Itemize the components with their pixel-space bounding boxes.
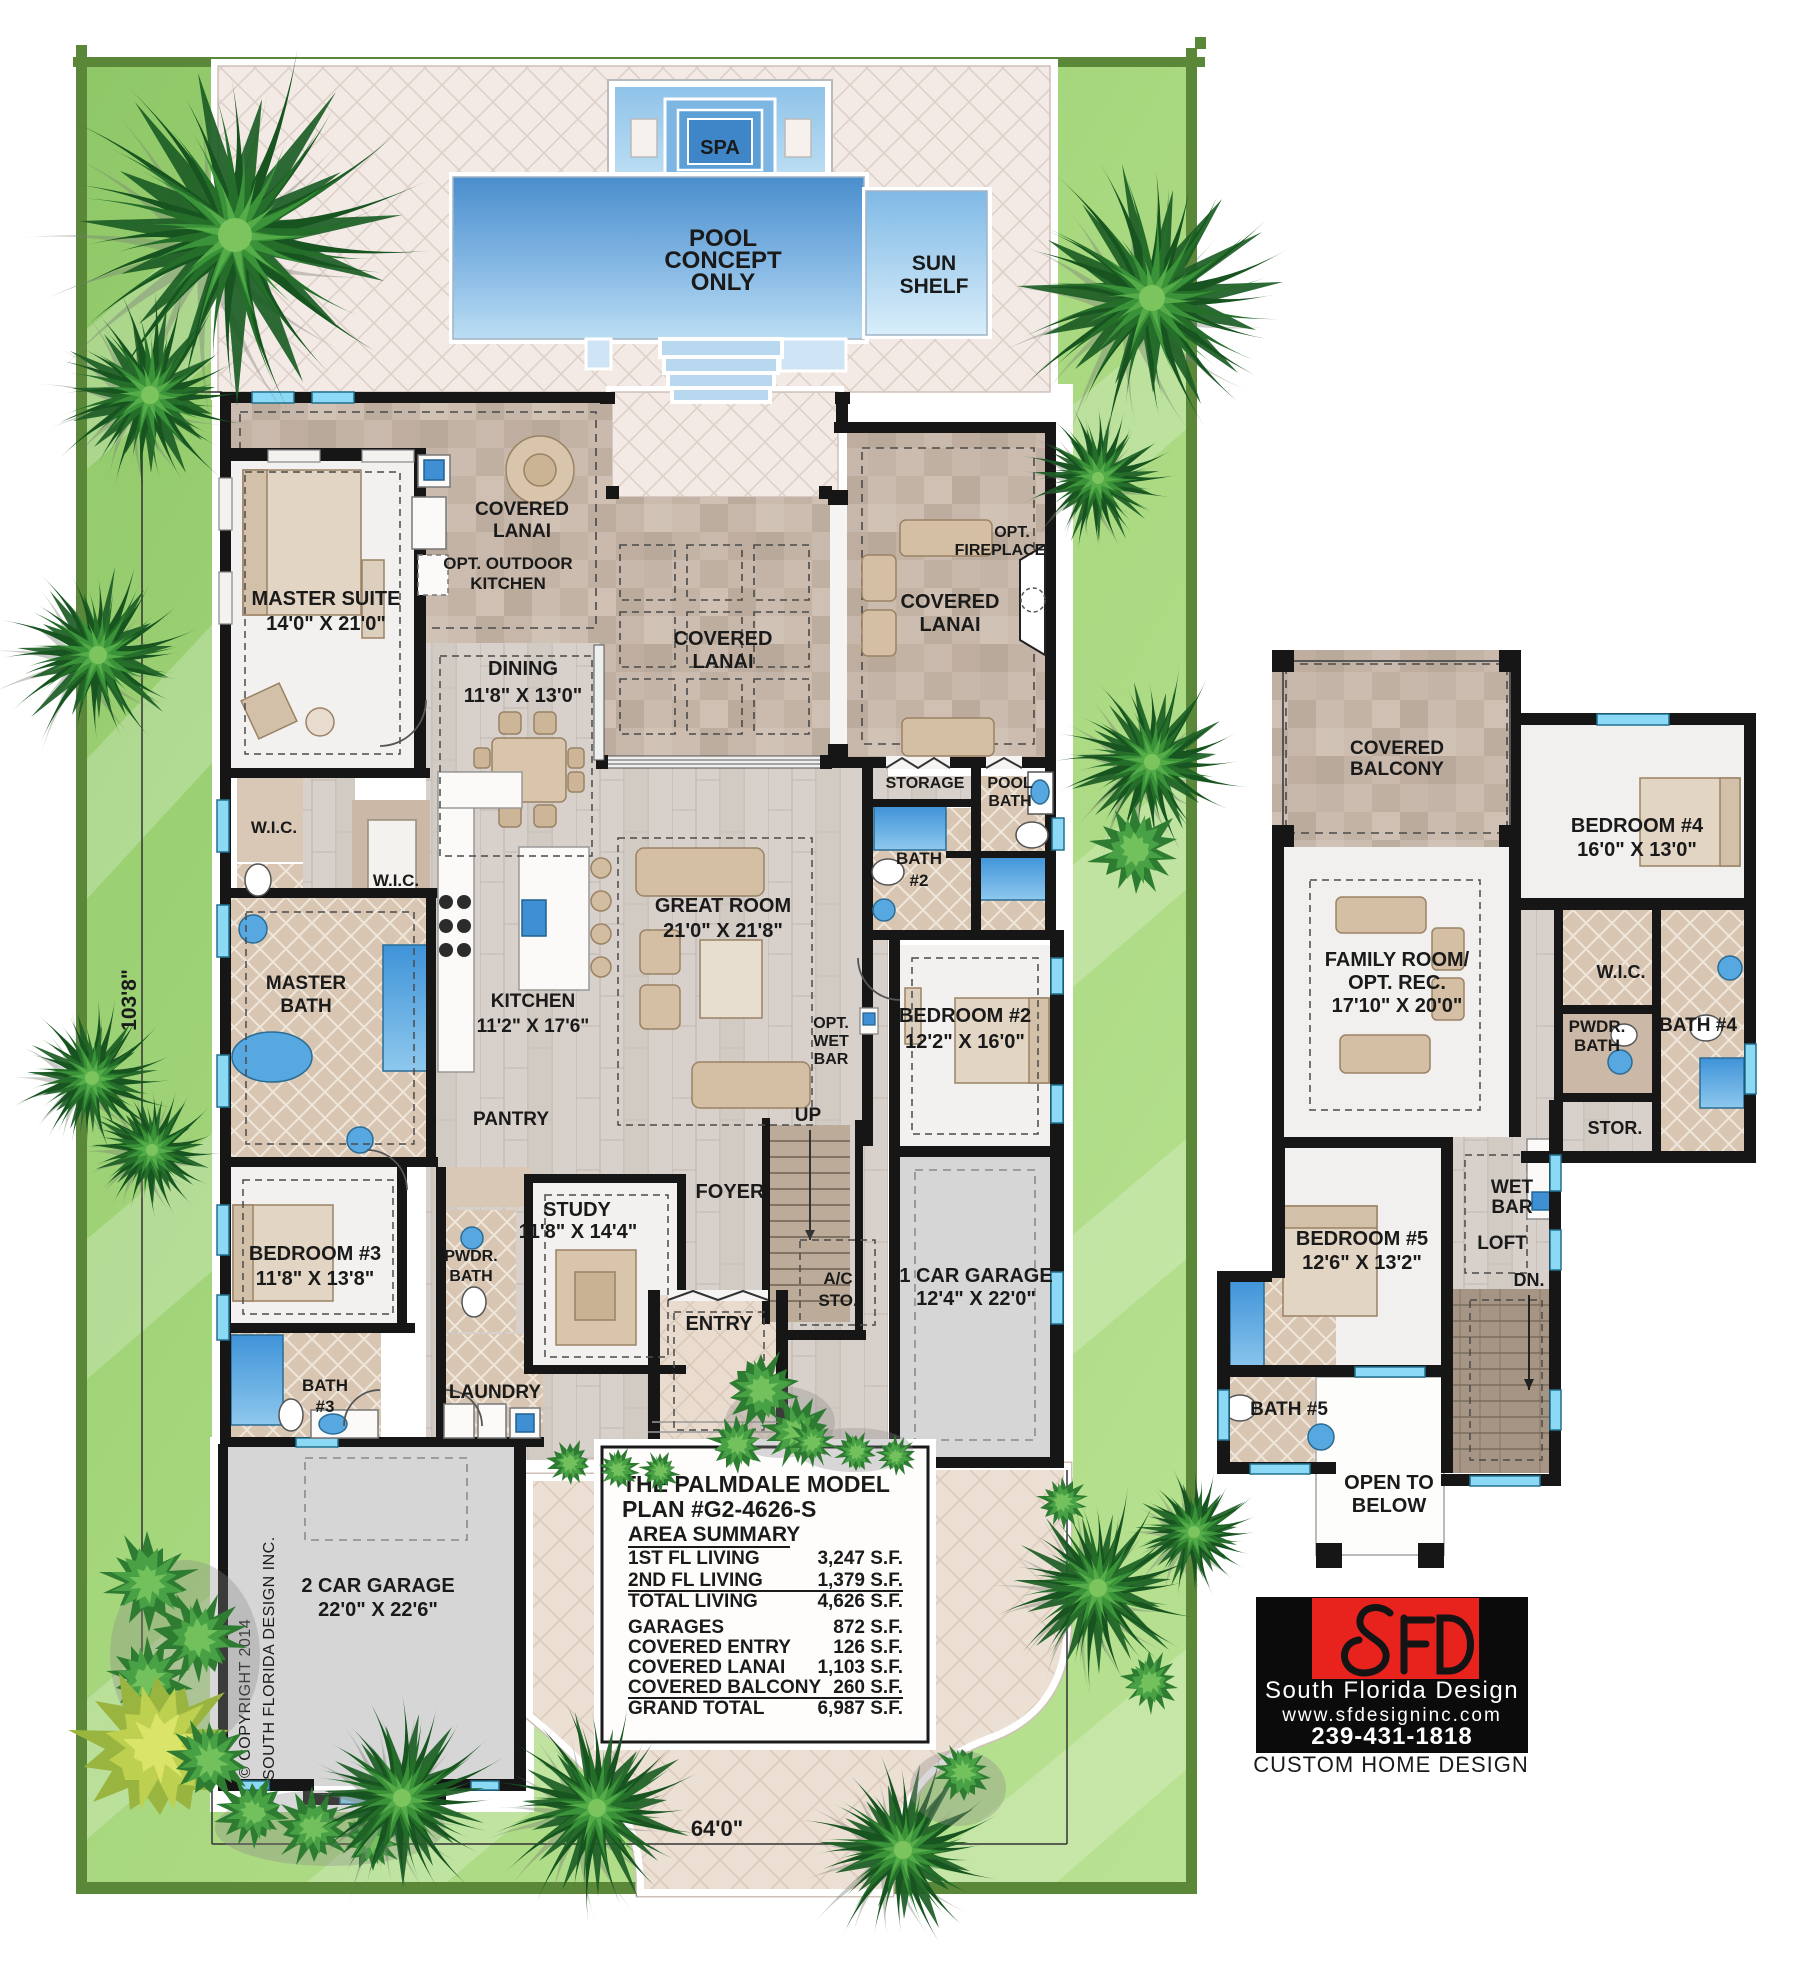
svg-text:OPT. OUTDOOR: OPT. OUTDOOR — [443, 554, 572, 573]
svg-text:BATH: BATH — [449, 1268, 492, 1285]
svg-text:ONLY: ONLY — [691, 269, 755, 296]
svg-text:64'0": 64'0" — [691, 1816, 743, 1841]
svg-text:STORAGE: STORAGE — [886, 775, 965, 792]
svg-text:SPA: SPA — [700, 137, 740, 159]
svg-text:OPEN TO: OPEN TO — [1344, 1472, 1434, 1494]
svg-text:MASTER SUITE: MASTER SUITE — [252, 588, 401, 610]
svg-text:LANAI: LANAI — [919, 614, 980, 636]
svg-text:BELOW: BELOW — [1352, 1495, 1427, 1517]
svg-text:LAUNDRY: LAUNDRY — [449, 1382, 542, 1403]
svg-text:239-431-1818: 239-431-1818 — [1311, 1723, 1472, 1750]
svg-text:OPT. REC.: OPT. REC. — [1348, 972, 1446, 994]
svg-text:BAR: BAR — [1491, 1197, 1532, 1218]
svg-text:BATH: BATH — [1574, 1036, 1620, 1055]
svg-text:SOUTH FLORIDA DESIGN INC.: SOUTH FLORIDA DESIGN INC. — [261, 1536, 278, 1780]
svg-text:PWDR.: PWDR. — [444, 1248, 497, 1265]
svg-text:BALCONY: BALCONY — [1350, 759, 1444, 780]
svg-text:12'4" X 22'0": 12'4" X 22'0" — [916, 1288, 1036, 1310]
svg-text:WET: WET — [813, 1033, 849, 1050]
svg-text:FOYER: FOYER — [696, 1181, 765, 1203]
svg-text:BATH #5: BATH #5 — [1250, 1399, 1328, 1420]
svg-text:PANTRY: PANTRY — [473, 1109, 549, 1130]
svg-text:FIREPLACE: FIREPLACE — [955, 542, 1046, 559]
svg-text:PWDR.: PWDR. — [1569, 1017, 1626, 1036]
svg-text:BAR: BAR — [814, 1051, 849, 1068]
svg-text:11'2" X 17'6": 11'2" X 17'6" — [477, 1016, 590, 1037]
svg-text:BATH: BATH — [302, 1376, 348, 1395]
svg-text:4,626 S.F.: 4,626 S.F. — [817, 1591, 903, 1612]
svg-text:#3: #3 — [316, 1397, 335, 1416]
svg-text:LOFT: LOFT — [1477, 1233, 1527, 1254]
svg-text:W.I.C.: W.I.C. — [373, 871, 419, 890]
svg-text:GRAND TOTAL: GRAND TOTAL — [628, 1698, 765, 1719]
svg-text:2 CAR GARAGE: 2 CAR GARAGE — [301, 1575, 454, 1597]
svg-text:1 CAR GARAGE: 1 CAR GARAGE — [899, 1265, 1052, 1287]
svg-text:103'8": 103'8" — [118, 969, 141, 1031]
svg-text:South Florida Design: South Florida Design — [1265, 1677, 1519, 1704]
svg-text:11'8" X 13'8": 11'8" X 13'8" — [256, 1268, 375, 1290]
svg-text:1,379 S.F.: 1,379 S.F. — [817, 1570, 903, 1591]
svg-text:SHELF: SHELF — [900, 275, 969, 298]
svg-text:WET: WET — [1491, 1177, 1534, 1198]
svg-text:TOTAL LIVING: TOTAL LIVING — [628, 1591, 758, 1612]
svg-text:22'0" X 22'6": 22'0" X 22'6" — [318, 1599, 438, 1621]
svg-text:3,247 S.F.: 3,247 S.F. — [817, 1548, 903, 1569]
svg-text:COVERED ENTRY: COVERED ENTRY — [628, 1637, 791, 1658]
svg-text:126 S.F.: 126 S.F. — [833, 1637, 903, 1658]
svg-text:11'8" X 14'4": 11'8" X 14'4" — [519, 1221, 638, 1243]
svg-text:1,103 S.F.: 1,103 S.F. — [817, 1657, 903, 1678]
svg-text:PLAN #G2-4626-S: PLAN #G2-4626-S — [622, 1496, 816, 1522]
svg-text:BATH: BATH — [988, 793, 1031, 810]
svg-text:A/C: A/C — [823, 1269, 852, 1288]
svg-text:BEDROOM #4: BEDROOM #4 — [1571, 815, 1704, 837]
svg-text:BEDROOM #5: BEDROOM #5 — [1296, 1228, 1428, 1250]
svg-text:UP: UP — [795, 1105, 822, 1126]
svg-text:DINING: DINING — [488, 658, 558, 680]
svg-text:16'0" X 13'0": 16'0" X 13'0" — [1577, 839, 1697, 861]
svg-text:#2: #2 — [910, 871, 929, 890]
svg-text:17'10" X 20'0": 17'10" X 20'0" — [1332, 995, 1463, 1017]
svg-text:GARAGES: GARAGES — [628, 1617, 724, 1638]
svg-text:ENTRY: ENTRY — [685, 1313, 753, 1335]
svg-text:FAMILY ROOM/: FAMILY ROOM/ — [1325, 949, 1470, 971]
svg-text:COVERED LANAI: COVERED LANAI — [628, 1657, 785, 1678]
svg-text:KITCHEN: KITCHEN — [491, 991, 575, 1012]
svg-text:COVERED: COVERED — [674, 628, 773, 650]
svg-text:LANAI: LANAI — [692, 651, 753, 673]
svg-text:BATH #4: BATH #4 — [1659, 1015, 1737, 1036]
svg-text:STOR.: STOR. — [1588, 1118, 1643, 1138]
svg-text:12'6" X 13'2": 12'6" X 13'2" — [1302, 1252, 1422, 1274]
svg-text:MASTER: MASTER — [266, 973, 347, 994]
svg-text:COVERED: COVERED — [1350, 738, 1444, 759]
svg-text:LANAI: LANAI — [493, 521, 551, 542]
svg-text:W.I.C.: W.I.C. — [1597, 962, 1646, 982]
svg-text:COVERED: COVERED — [901, 591, 1000, 613]
svg-text:12'2" X 16'0": 12'2" X 16'0" — [905, 1031, 1025, 1053]
svg-text:BEDROOM #2: BEDROOM #2 — [899, 1005, 1031, 1027]
svg-text:AREA SUMMARY: AREA SUMMARY — [628, 1523, 800, 1546]
svg-text:260 S.F.: 260 S.F. — [833, 1677, 903, 1698]
svg-text:OPT.: OPT. — [994, 524, 1030, 541]
svg-text:STUDY: STUDY — [543, 1199, 611, 1221]
svg-text:OPT.: OPT. — [813, 1015, 849, 1032]
svg-text:2ND FL LIVING: 2ND FL LIVING — [628, 1570, 763, 1591]
svg-text:BEDROOM #3: BEDROOM #3 — [249, 1243, 381, 1265]
svg-text:GREAT ROOM: GREAT ROOM — [655, 895, 791, 917]
svg-text:COVERED: COVERED — [475, 499, 569, 520]
svg-text:CUSTOM HOME DESIGN: CUSTOM HOME DESIGN — [1253, 1752, 1529, 1777]
svg-text:DN.: DN. — [1514, 1270, 1545, 1290]
svg-text:14'0" X 21'0": 14'0" X 21'0" — [266, 613, 386, 635]
svg-text:POOL: POOL — [987, 775, 1033, 792]
svg-text:W.I.C.: W.I.C. — [251, 818, 297, 837]
svg-text:STO.: STO. — [818, 1291, 857, 1310]
svg-text:11'8" X 13'0": 11'8" X 13'0" — [464, 685, 583, 707]
svg-text:KITCHEN: KITCHEN — [470, 574, 546, 593]
svg-text:872 S.F.: 872 S.F. — [833, 1617, 903, 1638]
svg-text:BATH: BATH — [280, 996, 331, 1017]
svg-text:BATH: BATH — [896, 849, 942, 868]
svg-text:SUN: SUN — [912, 252, 956, 275]
svg-text:1ST FL LIVING: 1ST FL LIVING — [628, 1548, 760, 1569]
svg-text:21'0" X 21'8": 21'0" X 21'8" — [663, 920, 783, 942]
svg-text:COVERED BALCONY: COVERED BALCONY — [628, 1677, 822, 1698]
svg-text:6,987 S.F.: 6,987 S.F. — [817, 1698, 903, 1719]
